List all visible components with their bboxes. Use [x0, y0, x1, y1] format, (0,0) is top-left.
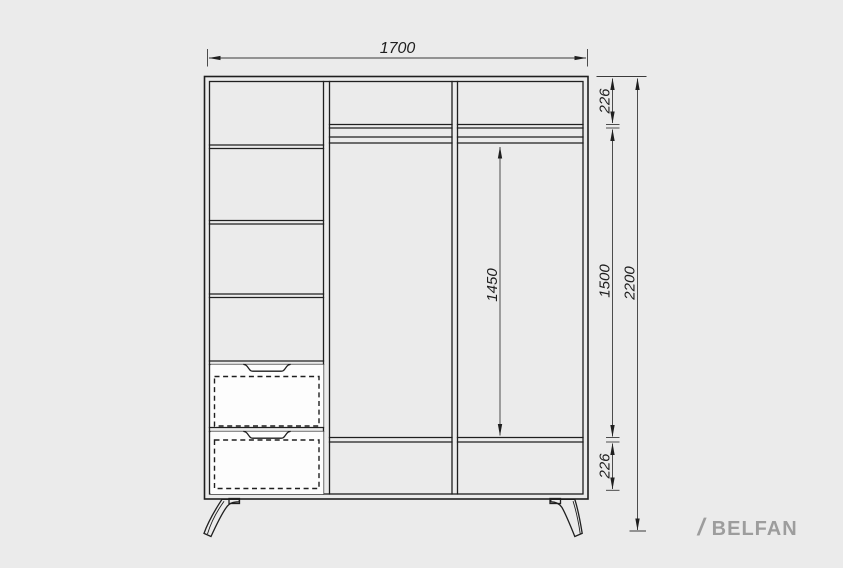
left-column-shelves [210, 145, 324, 365]
dimension-overall-width: 1700 [208, 40, 588, 67]
belfan-slash-icon: / [695, 516, 707, 540]
dimension-overall-height: 2200 [622, 79, 639, 531]
dimension-hanging-space: 1450 [484, 147, 501, 436]
technical-drawing-canvas: 1700 226 1500 226 2200 1450 / BELFAN [0, 0, 843, 568]
dimension-label-1700: 1700 [380, 40, 416, 57]
wardrobe-technical-drawing: 1700 226 1500 226 2200 1450 [0, 0, 843, 568]
belfan-logo: / BELFAN [698, 516, 798, 541]
dimension-label-1500: 1500 [597, 264, 614, 298]
top-shelf [330, 125, 584, 129]
dimension-bottom-section: 226 [597, 444, 614, 490]
belfan-name: BELFAN [712, 517, 798, 541]
dimension-label-226-bottom: 226 [597, 453, 614, 480]
dimension-label-226-top: 226 [597, 88, 614, 115]
right-leg [550, 499, 582, 537]
dimension-interior-height: 1500 [597, 130, 614, 437]
drawer-2 [211, 432, 324, 495]
dimension-top-section: 226 [597, 79, 614, 124]
dimension-label-2200: 2200 [622, 266, 639, 301]
drawer-1 [211, 365, 324, 428]
hanging-rods [330, 137, 584, 143]
bottom-shelf [330, 438, 584, 443]
dimension-label-1450: 1450 [484, 268, 501, 302]
left-leg [204, 499, 240, 537]
drawer-divider [210, 428, 324, 432]
